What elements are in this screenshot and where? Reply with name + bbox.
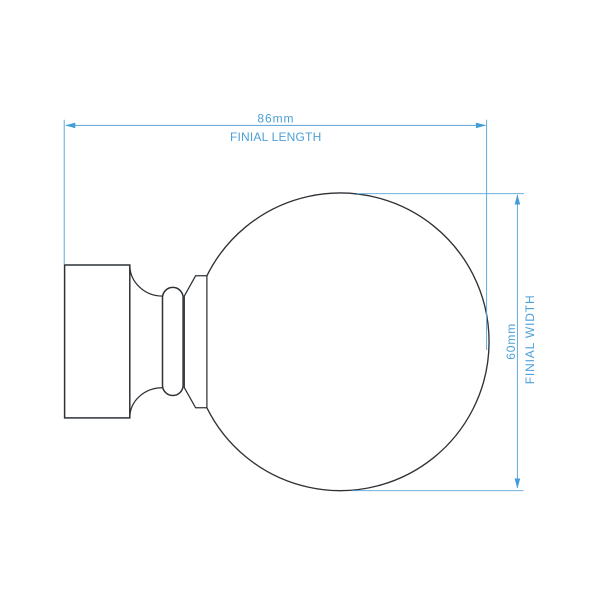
svg-text:60mm: 60mm [504,323,518,360]
svg-text:FINIAL WIDTH: FINIAL WIDTH [523,295,537,385]
svg-text:86mm: 86mm [257,112,294,126]
svg-text:FINIAL LENGTH: FINIAL LENGTH [230,130,322,144]
